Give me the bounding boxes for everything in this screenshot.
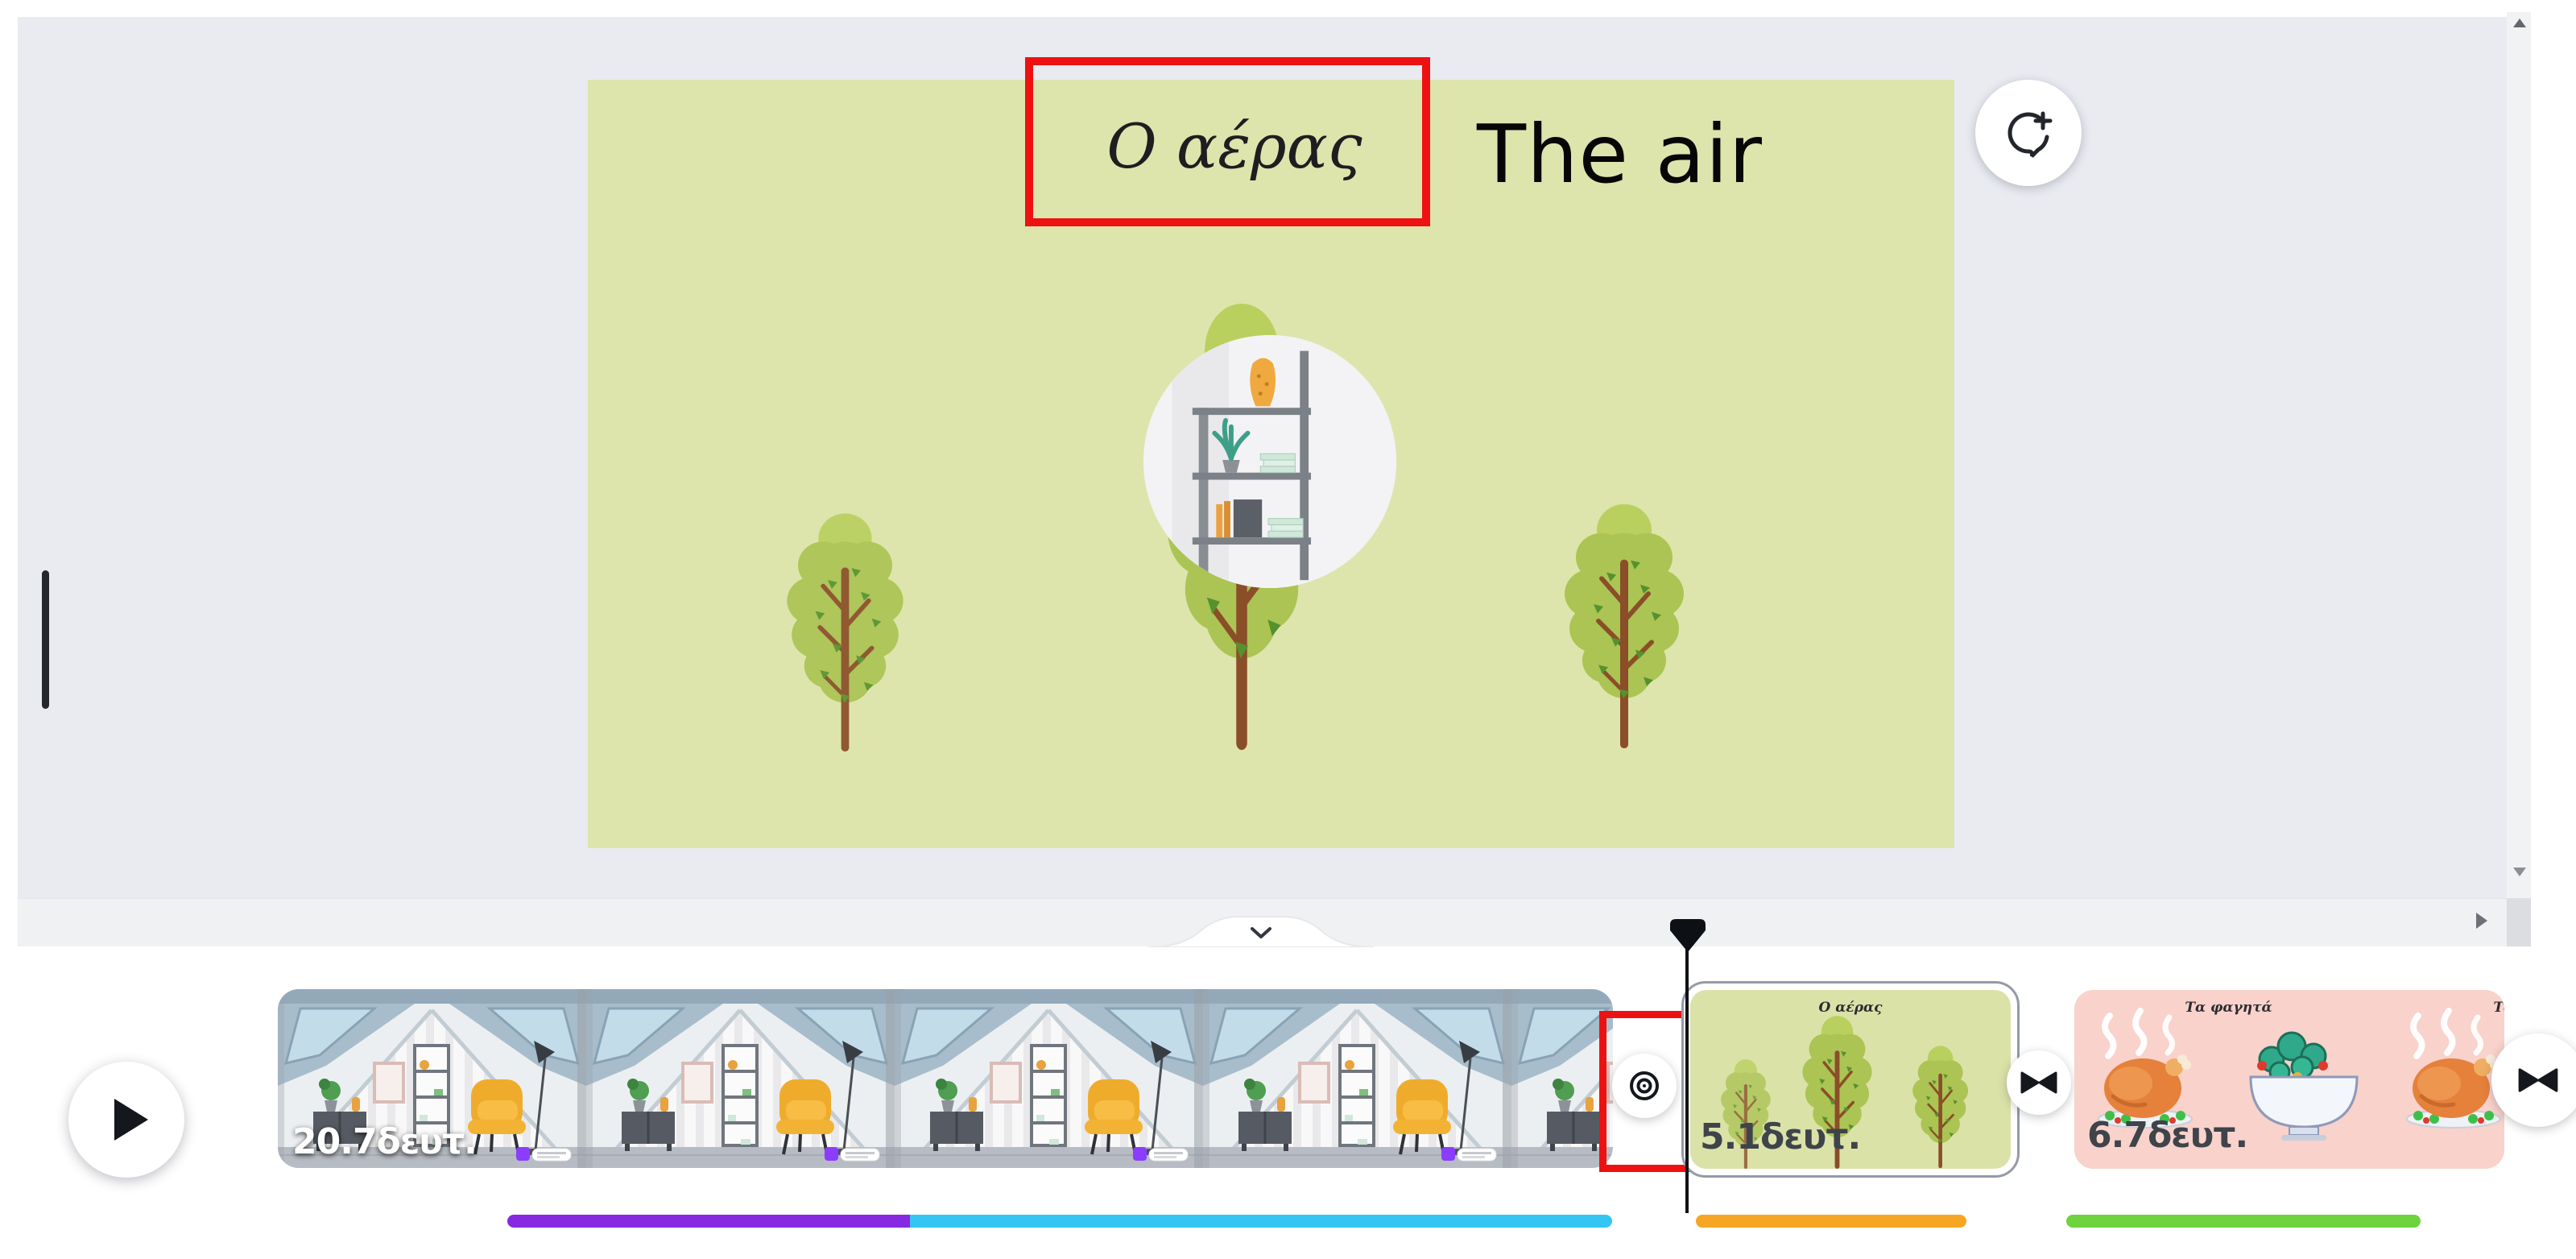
playhead-marker[interactable] (1669, 918, 1706, 954)
design-canvas-area[interactable]: Ο αέρας The air (18, 17, 2507, 898)
track-bar-green[interactable] (2066, 1215, 2421, 1228)
bookshelf-scene (1143, 335, 1396, 588)
track-bar-cyan[interactable] (910, 1215, 1612, 1228)
sidebar-expand-handle[interactable] (42, 570, 49, 709)
scroll-right-icon[interactable] (2476, 913, 2487, 929)
clip3-title: Τα φαγητά (2074, 1000, 2383, 1016)
clip2-title: Ο αέρας (1690, 1000, 2011, 1016)
add-comment-button[interactable] (1975, 80, 2082, 186)
timeline-clip-1[interactable] (278, 989, 1613, 1168)
clip2-duration-label: 5.1δευτ. (1700, 1116, 1860, 1158)
clip1-thumbnail (1511, 989, 1613, 1168)
clip3-thumbnail (2383, 990, 2504, 1169)
transition-bowtie-icon (2517, 1066, 2559, 1094)
video-editor: Ο αέρας The air (0, 0, 2576, 1259)
transition-button-partial[interactable] (2491, 1033, 2576, 1127)
clip1-thumbnail (1203, 989, 1511, 1168)
translation-overlay-text: The air (1477, 107, 1763, 201)
clip1-thumbnail (895, 989, 1203, 1168)
play-button[interactable] (68, 1062, 184, 1178)
transition-bowtie-icon (2020, 1071, 2058, 1095)
scroll-up-icon[interactable] (2513, 19, 2526, 27)
play-icon (114, 1099, 148, 1141)
chevron-down-icon[interactable] (1249, 926, 1273, 939)
slide-page[interactable]: Ο αέρας The air (588, 80, 1954, 848)
vertical-scrollbar[interactable] (2507, 12, 2531, 898)
playhead-line[interactable] (1685, 949, 1689, 1213)
clip3-title: Τα φαγητά (2383, 1000, 2504, 1016)
scrollbar-corner (2507, 898, 2531, 946)
tree-illustration-left (767, 500, 924, 752)
annotation-box-title (1025, 57, 1430, 226)
clip1-duration-label: 20.7δευτ. (292, 1121, 477, 1162)
circle-transition-preview (1143, 335, 1396, 588)
transition-button[interactable] (2007, 1050, 2071, 1115)
clip1-thumbnail (586, 989, 895, 1168)
clip3-duration-label: 6.7δευτ. (2087, 1115, 2247, 1156)
add-comment-icon (2002, 106, 2055, 159)
timeline-clip-3[interactable]: Τα φαγητά Τα φαγητά 6.7δευτ. (2074, 990, 2504, 1169)
timeline-clip-2-selected[interactable]: Ο αέρας 5.1δευτ. (1681, 981, 2020, 1178)
track-bar-purple[interactable] (507, 1215, 910, 1228)
tree-illustration-right (1544, 491, 1705, 748)
track-bar-orange[interactable] (1696, 1215, 1966, 1228)
scroll-down-icon[interactable] (2513, 868, 2526, 876)
